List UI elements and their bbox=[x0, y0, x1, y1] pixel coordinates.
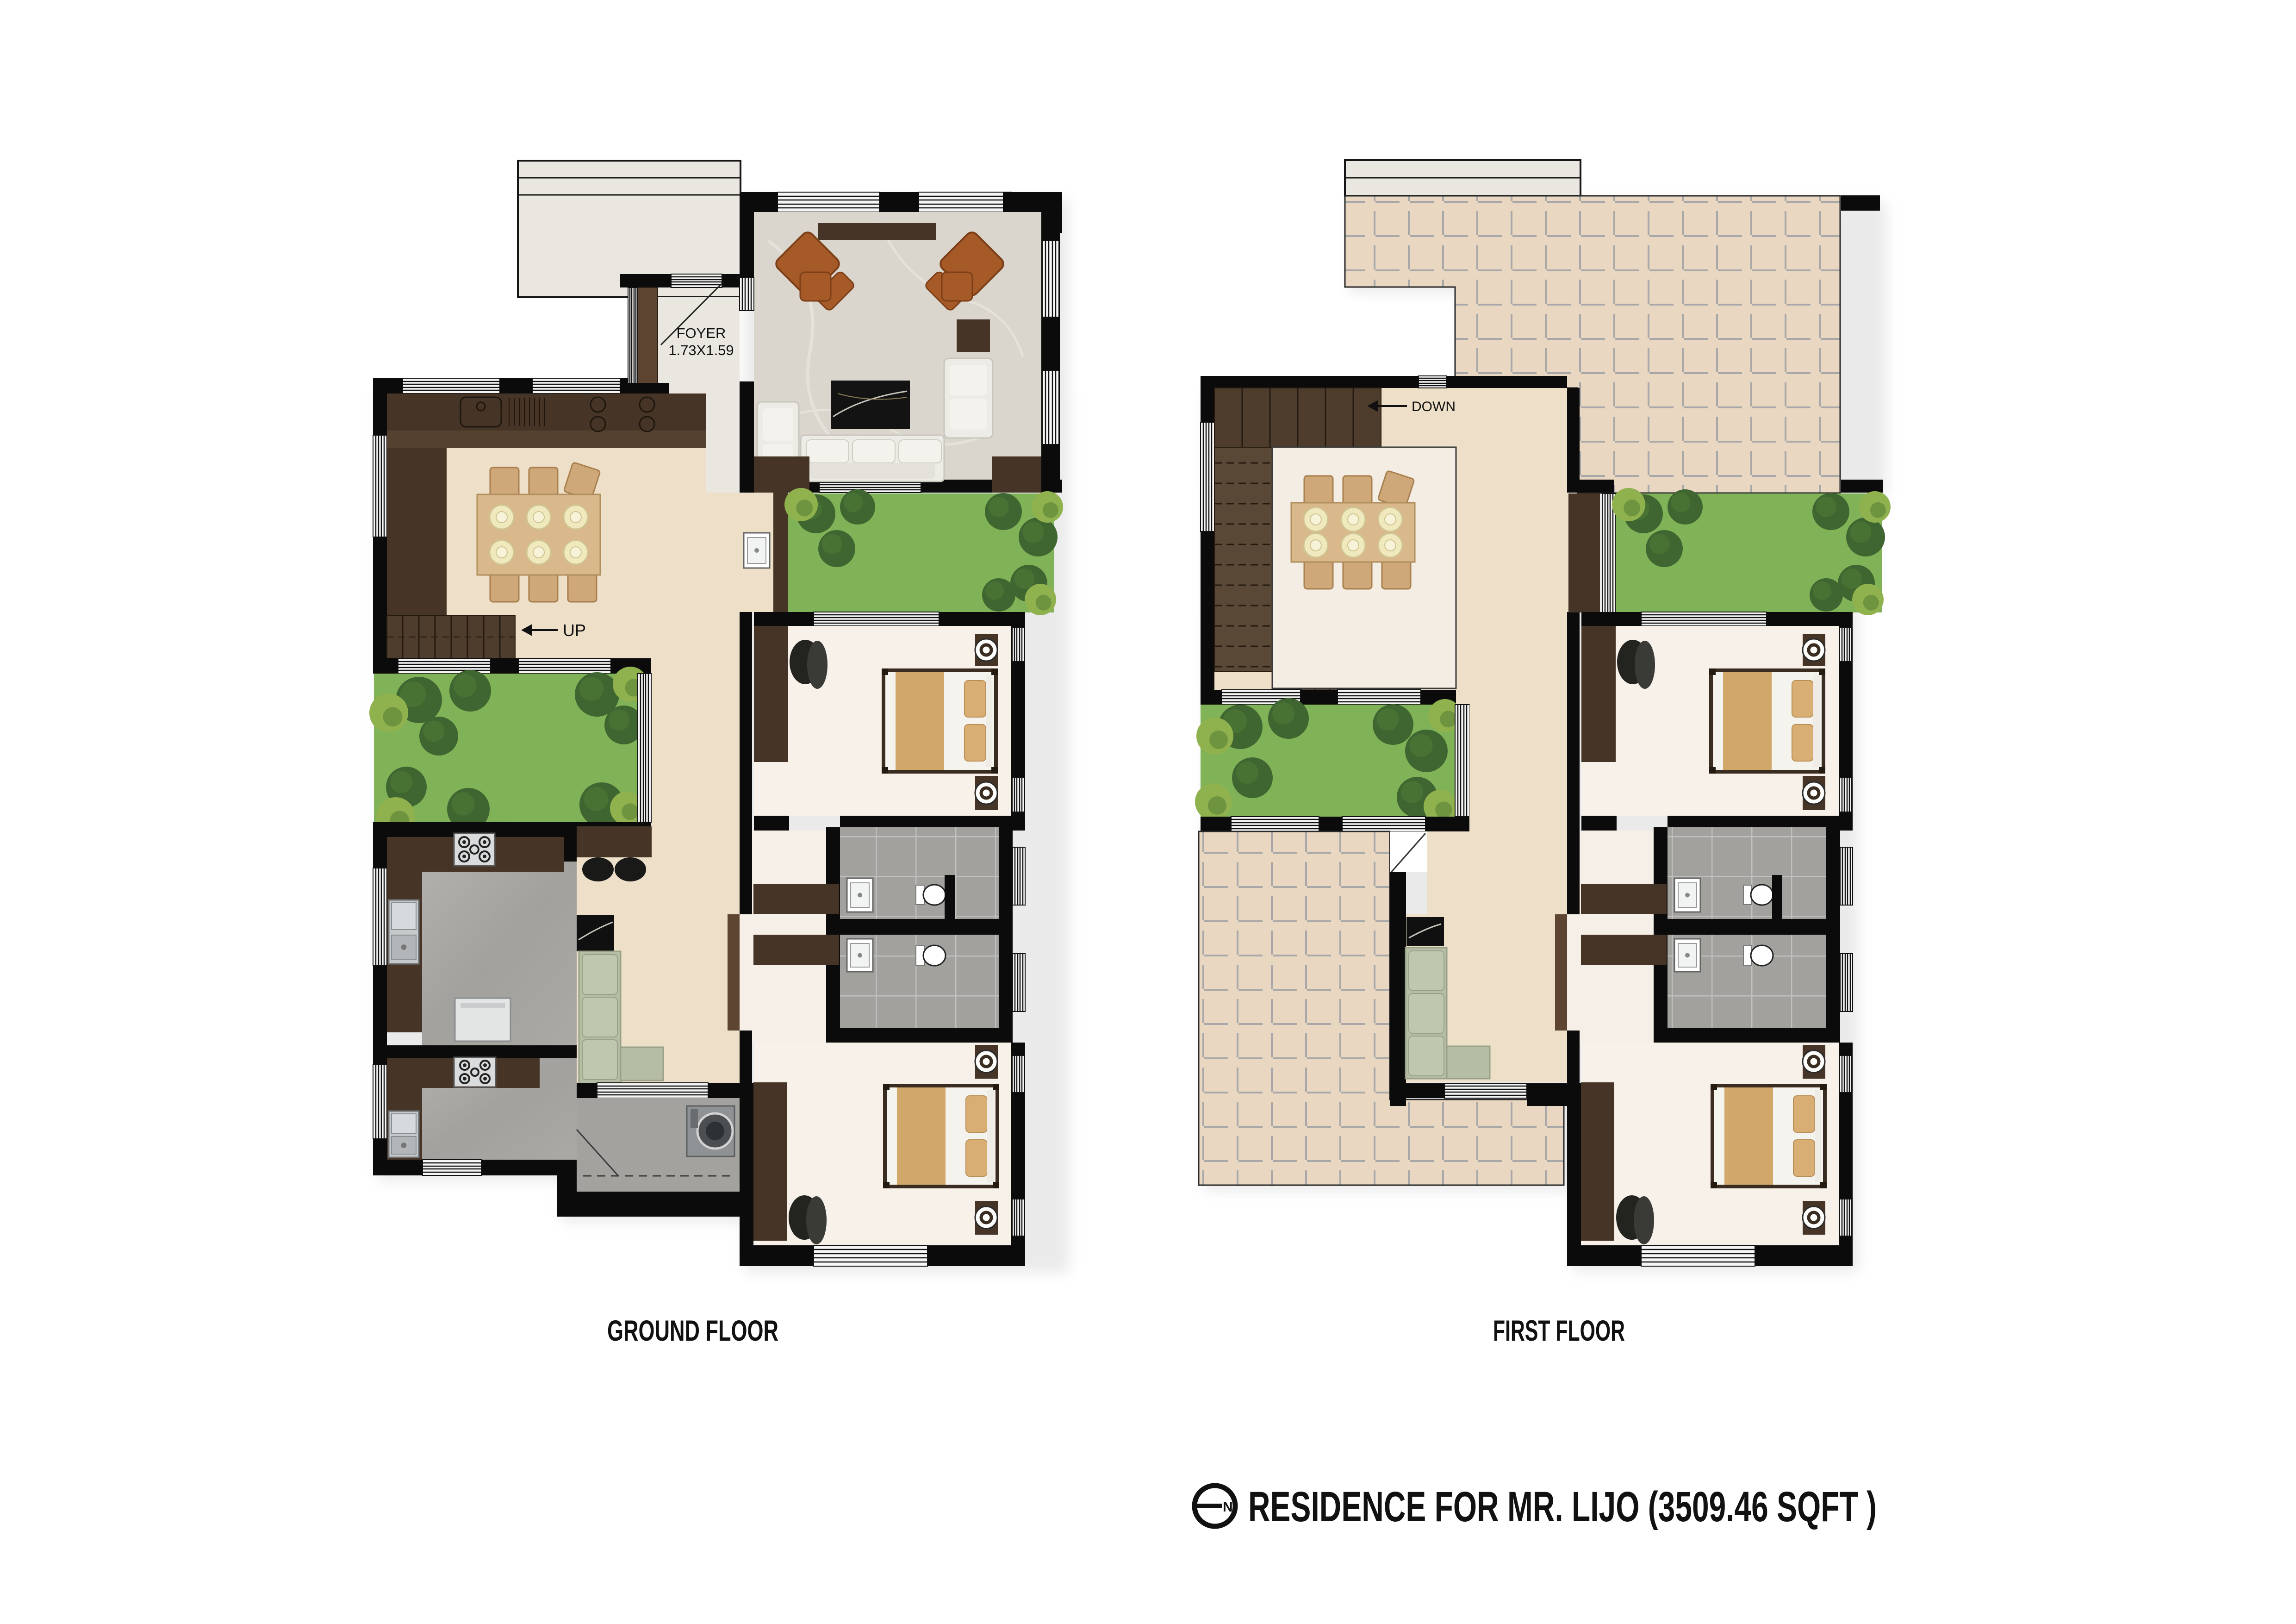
svg-text:FIRST FLOOR: FIRST FLOOR bbox=[1493, 1315, 1625, 1347]
svg-text:N: N bbox=[1223, 1499, 1233, 1515]
svg-text:RESIDENCE FOR MR. LIJO (3509.: RESIDENCE FOR MR. LIJO (3509.46 SQFT ) bbox=[1248, 1483, 1877, 1530]
svg-text:FOYER: FOYER bbox=[677, 325, 726, 341]
svg-text:1.73X1.59: 1.73X1.59 bbox=[668, 342, 734, 358]
svg-text:UP: UP bbox=[563, 621, 586, 640]
svg-text:DOWN: DOWN bbox=[1412, 399, 1456, 414]
svg-text:GROUND FLOOR: GROUND FLOOR bbox=[607, 1315, 778, 1347]
